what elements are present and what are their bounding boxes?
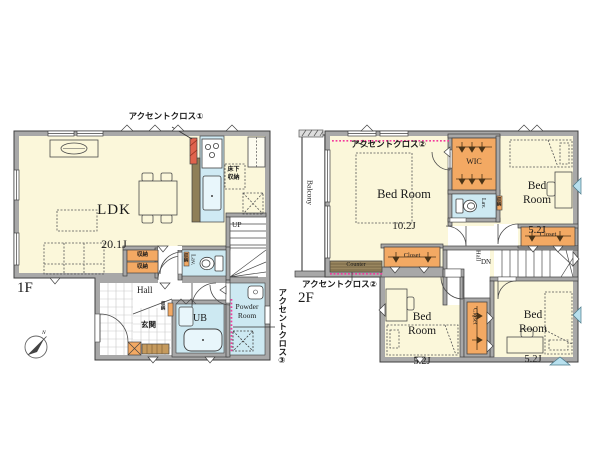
ldk-size: 20.1J	[86, 238, 142, 252]
bedroom-main-label: Bed Room 10.2J	[377, 169, 431, 251]
powder-room-label: Powder Room	[227, 302, 267, 321]
hall-storage-label: 収納	[160, 301, 165, 310]
storage-label-2f: 収納	[496, 197, 501, 206]
storage-label-b: 収納	[128, 264, 157, 270]
washbasin-icon	[248, 286, 263, 299]
bedroom-main-size: 10.2J	[377, 220, 431, 233]
accent-wall-1	[190, 138, 197, 164]
entrance-label: 玄関	[141, 321, 156, 330]
stairs-down-label: DN	[481, 258, 491, 266]
bedroom-ne-name: Bed Room	[513, 180, 561, 206]
toilet-label-1f: Lav.	[189, 254, 196, 265]
closet-mid-label: Closet	[386, 252, 438, 259]
closet-sw-label: Closet	[471, 308, 478, 325]
hall-storage	[168, 303, 173, 316]
pantry-icon	[248, 137, 265, 167]
floorplan-page: アクセントクロス① LDK 20.1J 床下収納 収納 収納 UP 収納 Lav…	[0, 0, 600, 474]
bath-label: UB	[191, 313, 209, 325]
floor-2-label: 2F	[298, 290, 314, 307]
bedroom-sw-size: 5.2J	[398, 356, 446, 368]
bedroom-se-label: Bed Room 5.2J	[509, 291, 557, 385]
counter-label: Counter	[336, 262, 376, 269]
bedroom-ne-label: Bed Room 5.2J	[513, 162, 561, 256]
tv-board-icon	[50, 140, 98, 157]
floor-1-label: 1F	[17, 280, 33, 297]
accent-cloth-1-label: アクセントクロス①	[118, 113, 214, 123]
toilet-label-2f: Lav.	[479, 198, 486, 208]
closet-ne-label: Closet	[523, 231, 573, 238]
stove-icon	[202, 139, 222, 168]
bedroom-main-name: Bed Room	[377, 187, 431, 201]
stairs-up-label: UP	[232, 221, 242, 230]
floor-storage-label: 床下収納	[226, 166, 241, 182]
accent-cloth-3-label: アクセントクロス③	[276, 288, 286, 366]
bedroom-sw-name: Bed Room	[398, 311, 446, 337]
balcony-label: Balcony	[305, 180, 314, 205]
compass-north-label: N	[42, 330, 46, 336]
wic-label: WIC	[452, 157, 496, 166]
bedroom-se-size: 5.2J	[509, 354, 557, 366]
lav-storage-label-1f: 収納	[183, 253, 188, 262]
hall-label-1f: Hall	[137, 285, 153, 295]
accent-cloth-2-label-top: アクセントクロス②	[351, 141, 426, 151]
compass-icon	[25, 336, 47, 358]
bedroom-sw-label: Bed Room 5.2J	[398, 293, 446, 387]
ldk-name: LDK	[86, 202, 142, 219]
toilet-icon-2f	[456, 199, 477, 213]
sink-icon	[203, 176, 221, 210]
kitchen-counter-edge	[192, 158, 200, 222]
shoe-storage-icon	[128, 342, 169, 355]
storage-label-a: 収納	[128, 252, 157, 258]
bedroom-se-name: Bed Room	[509, 309, 557, 335]
